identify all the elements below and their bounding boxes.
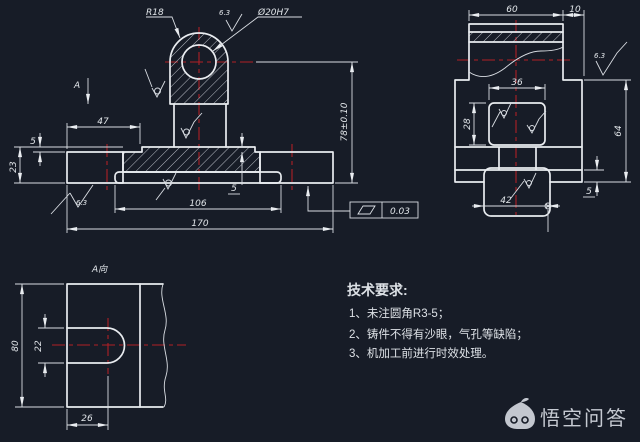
machining-symbol-icon xyxy=(492,103,511,127)
hole-label: Ø20H7 xyxy=(257,7,289,18)
machining-symbol-icon xyxy=(527,111,546,133)
tech-requirement-item: 1、未注圆角R3-5； xyxy=(349,306,449,320)
stem-outline xyxy=(174,104,226,147)
watermark-label: 悟空问答 xyxy=(540,407,628,430)
a-direction-view: A向 80 22 26 xyxy=(11,264,186,430)
dim-47: 47 xyxy=(97,117,109,127)
wukong-monkey-icon xyxy=(505,398,535,429)
boss-hatch xyxy=(170,33,228,104)
dim-106: 106 xyxy=(189,199,206,209)
section-label: A xyxy=(73,81,80,91)
dim-36: 36 xyxy=(511,78,523,88)
dim-78: 78±0.10 xyxy=(340,102,350,141)
watermark: 悟空问答 xyxy=(505,398,628,430)
dim-42: 42 xyxy=(500,196,512,206)
side-view: 6.3 60 10 36 28 64 5 xyxy=(455,5,631,232)
machining-symbol-icon xyxy=(511,173,536,198)
roughness-left-value: 6.3 xyxy=(76,199,87,207)
tech-requirements-title: 技术要求: xyxy=(347,282,408,298)
roughness-top-value: 6.3 xyxy=(219,9,230,17)
tech-requirements: 技术要求: 1、未注圆角R3-5； 2、铸件不得有沙眼，气孔等缺陷； 3、机加工… xyxy=(347,282,528,360)
drawing-canvas: A R18 Ø20H7 6.3 6.3 xyxy=(0,0,640,442)
tolerance-value: 0.03 xyxy=(390,207,410,217)
a-view-dimensions: 80 22 26 xyxy=(11,284,108,430)
tolerance-frame: 0.03 xyxy=(308,186,418,218)
dim-23: 23 xyxy=(9,161,19,173)
tech-requirement-item: 3、机加工前进行时效处理。 xyxy=(349,346,493,360)
dim-5-left: 5 xyxy=(30,137,36,147)
tab-outline xyxy=(484,168,550,216)
dim-26: 26 xyxy=(81,414,93,424)
flatness-icon xyxy=(358,206,375,214)
dim-5-right: 5 xyxy=(231,184,237,194)
tech-requirement-item: 2、铸件不得有沙眼，气孔等缺陷； xyxy=(349,327,528,341)
hole-callout: Ø20H7 6.3 xyxy=(213,7,302,51)
dim-28: 28 xyxy=(463,118,473,130)
side-hatch xyxy=(469,32,563,42)
roughness-callout: 6.3 xyxy=(51,185,93,214)
slab-outline xyxy=(115,172,281,183)
front-view: A R18 Ø20H7 6.3 6.3 xyxy=(9,7,358,233)
radius-callout: R18 xyxy=(146,8,180,38)
roughness-callout: 6.3 xyxy=(594,42,627,75)
base-band-hatch xyxy=(123,147,260,172)
right-ear-outline xyxy=(260,152,333,183)
dim-22: 22 xyxy=(34,340,44,352)
roughness-value: 6.3 xyxy=(594,52,605,60)
dim-5: 5 xyxy=(586,187,592,197)
section-arrow-a: A xyxy=(73,78,88,104)
dim-80: 80 xyxy=(11,340,21,352)
radius-label: R18 xyxy=(146,8,164,18)
cad-drawing-window: A R18 Ø20H7 6.3 6.3 xyxy=(0,0,640,442)
machining-symbol-icon xyxy=(145,69,165,97)
dim-170: 170 xyxy=(191,219,208,229)
dim-64: 64 xyxy=(614,125,624,137)
machining-symbol-icon xyxy=(156,173,176,200)
dim-10: 10 xyxy=(569,5,581,15)
dim-60: 60 xyxy=(506,5,518,15)
view-title: A向 xyxy=(91,264,108,275)
